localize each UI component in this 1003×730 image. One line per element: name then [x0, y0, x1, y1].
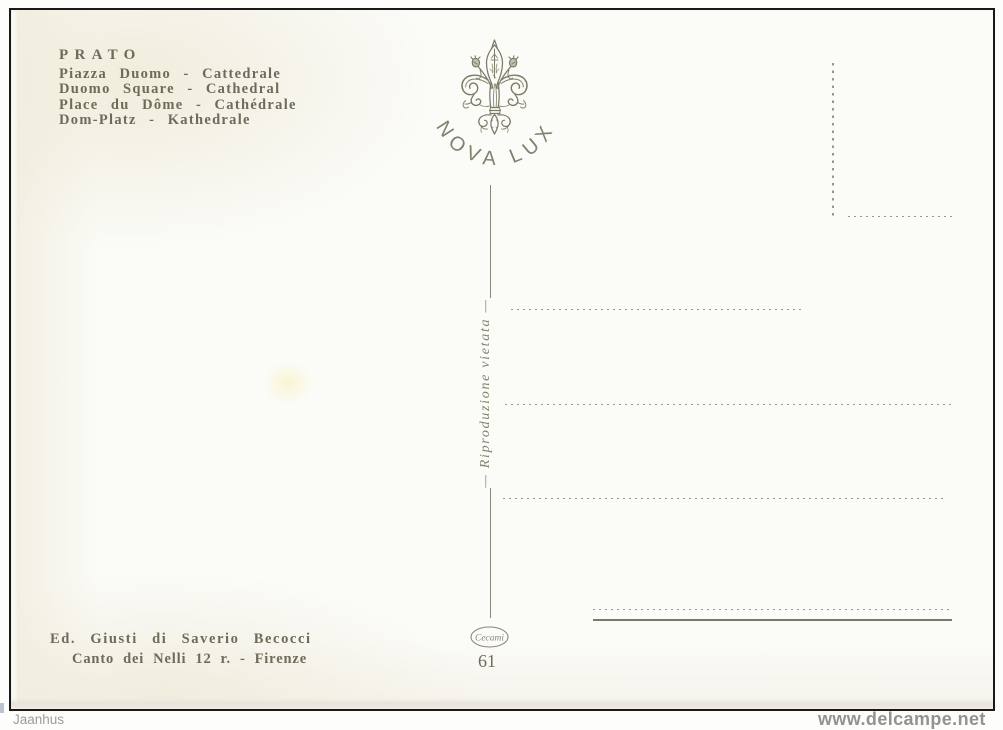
svg-text:Cecami: Cecami — [475, 634, 504, 644]
svg-text:NOVA LUX: NOVA LUX — [431, 117, 560, 170]
